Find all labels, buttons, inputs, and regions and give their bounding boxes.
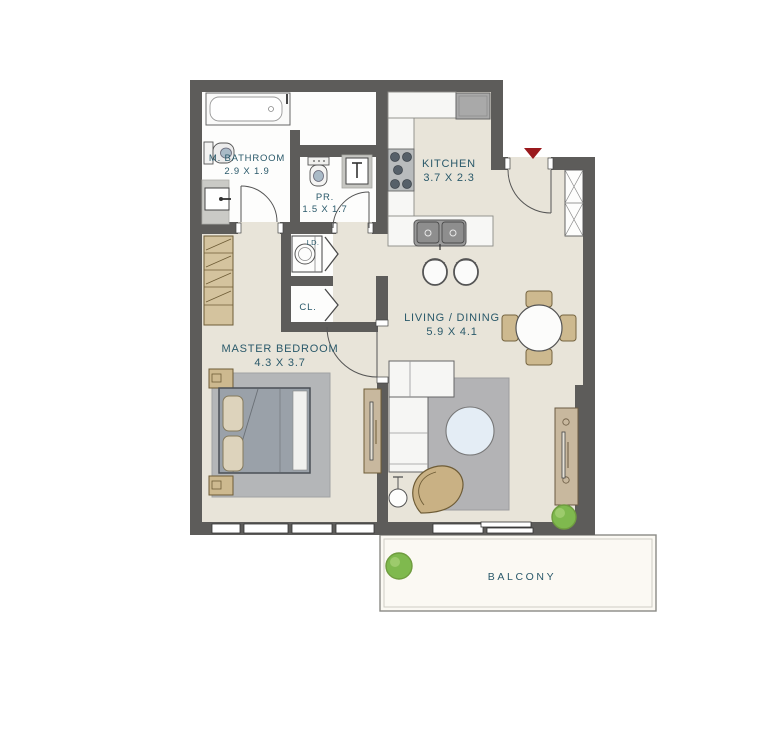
balcony-slider-leaf-1 xyxy=(481,522,531,527)
pillow-icon xyxy=(223,396,243,431)
pr-toilet-icon xyxy=(308,157,329,186)
bedroom-window-3 xyxy=(292,524,332,533)
floor-plan-page: M. BATHROOM 2.9 X 1.9 PR. 1.5 X 1.7 KITC… xyxy=(0,0,782,736)
wall-niche-mid xyxy=(281,276,333,286)
wall-top xyxy=(190,80,503,92)
bed-icon xyxy=(219,388,310,473)
entry-jamb-left xyxy=(505,158,510,169)
bedroom-window-4 xyxy=(336,524,374,533)
balcony-label: BALCONY xyxy=(488,571,556,583)
duct-shaft-icon xyxy=(565,170,583,236)
bathtub-icon xyxy=(206,93,290,125)
bedroom-window-2 xyxy=(244,524,288,533)
bedroom-window-1 xyxy=(212,524,240,533)
kitchen-label: KITCHEN xyxy=(422,158,476,170)
wall-bath-bottom-c xyxy=(372,222,388,234)
coffee-table-icon xyxy=(446,407,494,455)
bathroom-label: M. BATHROOM xyxy=(209,153,285,164)
bar-stool-icon xyxy=(454,259,478,285)
outside-area xyxy=(503,78,598,157)
plant-icon xyxy=(552,505,576,529)
tv-console-icon xyxy=(555,408,578,505)
living-window xyxy=(433,524,483,533)
pr-washbasin-icon xyxy=(342,155,372,188)
washbasin-icon xyxy=(202,180,231,224)
kitchen-dims: 3.7 X 2.3 xyxy=(423,172,474,184)
kitchen-counter-top xyxy=(388,92,456,118)
pillow-icon xyxy=(223,436,243,471)
bathroom-dims: 2.9 X 1.9 xyxy=(224,166,269,177)
entry-jamb-right xyxy=(548,158,553,169)
balcony-slider-leaf-2 xyxy=(487,528,533,533)
floor-plan: M. BATHROOM 2.9 X 1.9 PR. 1.5 X 1.7 KITC… xyxy=(0,0,782,736)
refrigerator-icon xyxy=(456,93,490,119)
stove-icon xyxy=(388,149,414,191)
wall-bath-bottom-b xyxy=(280,222,336,234)
pr-dims: 1.5 X 1.7 xyxy=(302,204,347,215)
pr-label: PR. xyxy=(316,192,334,203)
wall-bedroom-top xyxy=(281,322,378,332)
living-dims: 5.9 X 4.1 xyxy=(426,326,477,338)
kitchen-sink-icon xyxy=(414,220,466,250)
wall-living-bedroom-stub xyxy=(376,276,388,326)
bath-jamb-left xyxy=(236,223,241,233)
plant-icon xyxy=(386,553,412,579)
bar-stool-icon xyxy=(423,259,447,285)
nightstand-icon xyxy=(209,476,233,495)
wall-left xyxy=(190,80,202,535)
wall-right xyxy=(583,157,595,535)
wall-bath-pr-divider xyxy=(290,130,300,234)
closet-label: CL. xyxy=(299,302,316,313)
bedroom-tv-console-icon xyxy=(364,389,381,473)
wardrobe-icon xyxy=(204,236,233,325)
bedroom-jamb-bottom xyxy=(377,377,388,383)
bath-jamb-right xyxy=(278,223,283,233)
bedroom-label: MASTER BEDROOM xyxy=(222,343,339,355)
bedroom-jamb-top xyxy=(376,320,388,326)
bedroom-dims: 4.3 X 3.7 xyxy=(254,357,305,369)
dining-table-icon xyxy=(516,305,562,351)
nightstand-icon xyxy=(209,369,233,388)
living-label: LIVING / DINING xyxy=(404,312,500,324)
wall-pr-kitchen-divider xyxy=(376,92,388,234)
laundry-label: LD. xyxy=(307,238,320,247)
